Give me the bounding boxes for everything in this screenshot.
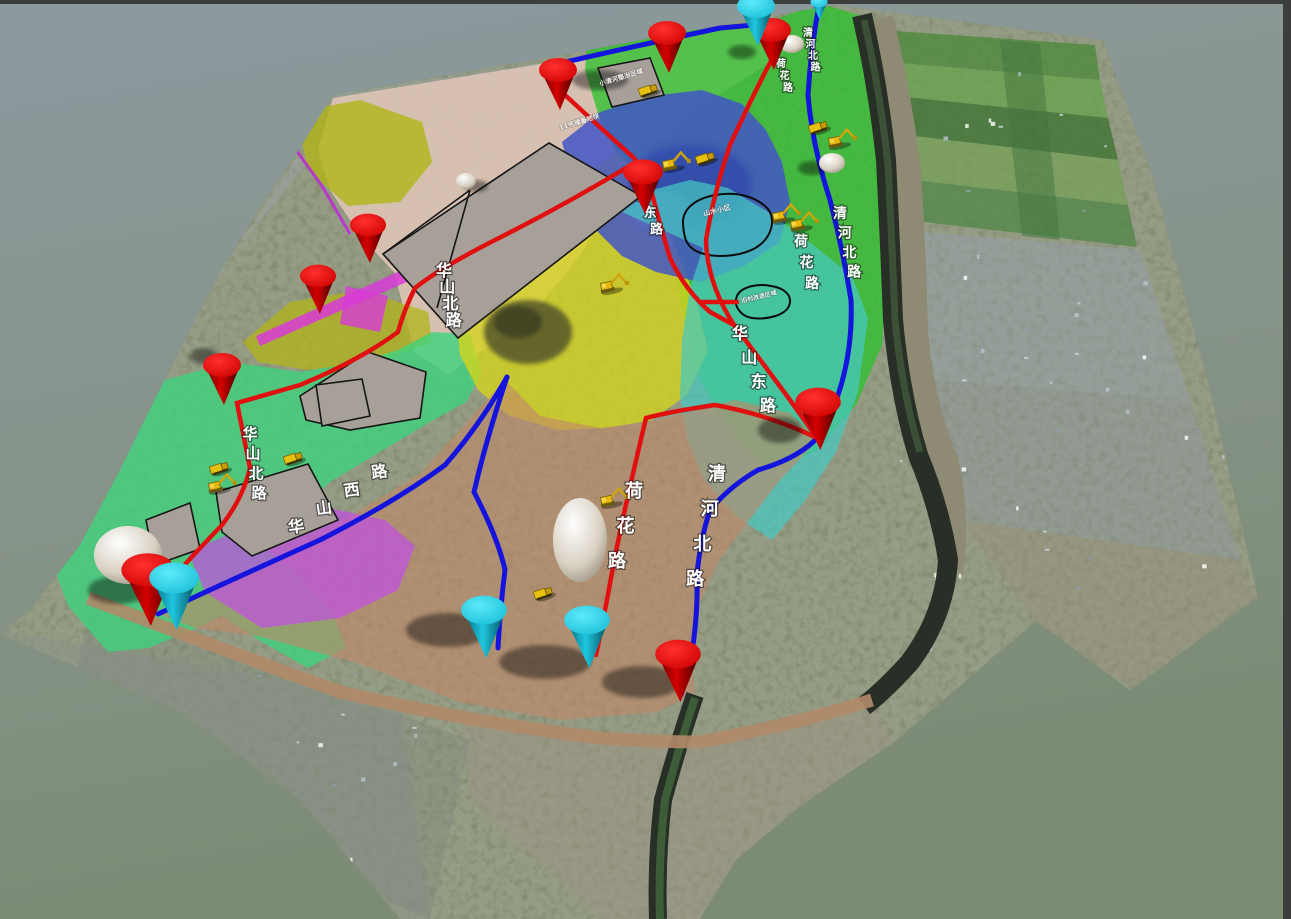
rooftop-speck bbox=[1056, 430, 1061, 432]
rooftop-speck bbox=[1045, 549, 1050, 551]
rooftop-speck bbox=[1074, 313, 1079, 317]
white-dome bbox=[819, 153, 845, 173]
rooftop-speck bbox=[964, 276, 968, 280]
rooftop-speck bbox=[393, 762, 397, 766]
rooftop-speck bbox=[412, 727, 417, 729]
svg-text:华: 华 bbox=[242, 425, 257, 443]
svg-text:河: 河 bbox=[701, 499, 719, 520]
svg-text:山: 山 bbox=[741, 348, 757, 367]
rooftop-speck bbox=[1143, 355, 1147, 359]
rooftop-speck bbox=[991, 122, 996, 126]
rooftop-speck bbox=[1043, 531, 1047, 533]
svg-text:清: 清 bbox=[708, 464, 726, 485]
svg-text:路: 路 bbox=[608, 550, 627, 572]
3d-viewport[interactable]: 华山北路华山东路清河北路荷花路清河北路荷花路华山东路清河北路荷花路华山北路华山西… bbox=[0, 0, 1291, 919]
white-dome bbox=[553, 498, 607, 582]
svg-text:路: 路 bbox=[650, 222, 664, 238]
rooftop-speck bbox=[1016, 506, 1019, 510]
rooftop-speck bbox=[1078, 302, 1081, 304]
svg-text:山: 山 bbox=[315, 498, 334, 519]
svg-text:河: 河 bbox=[838, 225, 852, 242]
svg-text:清: 清 bbox=[803, 26, 813, 39]
shadow-blob bbox=[758, 417, 802, 443]
shadow-blob bbox=[499, 645, 591, 679]
rooftop-speck bbox=[341, 714, 345, 716]
rooftop-speck bbox=[1143, 281, 1148, 285]
rooftop-speck bbox=[1222, 455, 1225, 459]
rooftop-speck bbox=[318, 743, 323, 747]
svg-text:北: 北 bbox=[842, 245, 856, 261]
svg-text:路: 路 bbox=[811, 61, 822, 74]
rooftop-speck bbox=[1060, 114, 1064, 116]
svg-text:华: 华 bbox=[287, 516, 306, 537]
svg-text:路: 路 bbox=[446, 311, 463, 330]
svg-text:山: 山 bbox=[245, 445, 260, 463]
svg-text:路: 路 bbox=[847, 264, 862, 281]
shadow-blob bbox=[728, 45, 756, 59]
svg-text:路: 路 bbox=[760, 396, 777, 415]
rooftop-speck bbox=[1185, 436, 1189, 440]
rooftop-speck bbox=[900, 460, 903, 462]
svg-text:清: 清 bbox=[833, 205, 847, 222]
rooftop-speck bbox=[977, 255, 980, 259]
svg-text:荷: 荷 bbox=[625, 480, 643, 502]
rooftop-speck bbox=[1024, 357, 1029, 359]
white-dome bbox=[456, 173, 476, 189]
svg-text:路: 路 bbox=[686, 568, 705, 590]
svg-text:东: 东 bbox=[751, 372, 767, 391]
rooftop-speck bbox=[1197, 431, 1200, 433]
svg-text:西: 西 bbox=[342, 479, 361, 500]
svg-text:北: 北 bbox=[693, 534, 711, 555]
svg-text:华: 华 bbox=[732, 324, 748, 343]
svg-text:路: 路 bbox=[251, 484, 267, 502]
svg-text:北: 北 bbox=[248, 464, 263, 482]
rooftop-speck bbox=[361, 777, 366, 781]
rooftop-speck bbox=[999, 126, 1004, 128]
rooftop-speck bbox=[1088, 558, 1091, 560]
rooftop-speck bbox=[1075, 353, 1079, 355]
rooftop-speck bbox=[981, 349, 985, 353]
rooftop-speck bbox=[962, 379, 967, 381]
svg-text:花: 花 bbox=[800, 254, 814, 271]
rooftop-speck bbox=[1202, 564, 1207, 568]
rooftop-speck bbox=[1104, 145, 1107, 147]
rooftop-speck bbox=[1050, 382, 1053, 384]
rooftop-speck bbox=[1082, 210, 1086, 212]
rooftop-speck bbox=[1024, 329, 1029, 331]
rooftop-speck bbox=[965, 124, 969, 128]
window-frame-top bbox=[0, 0, 1291, 4]
rooftop-speck bbox=[257, 675, 262, 677]
rooftop-speck bbox=[966, 190, 971, 192]
svg-text:花: 花 bbox=[780, 69, 790, 82]
svg-text:北: 北 bbox=[808, 49, 818, 62]
rooftop-speck bbox=[414, 734, 417, 738]
svg-text:路: 路 bbox=[805, 275, 820, 292]
rooftop-speck bbox=[1126, 410, 1130, 414]
svg-text:荷: 荷 bbox=[793, 233, 808, 250]
rooftop-speck bbox=[962, 467, 967, 471]
svg-text:花: 花 bbox=[617, 515, 635, 537]
rooftop-speck bbox=[1018, 72, 1021, 76]
rooftop-speck bbox=[1020, 271, 1024, 273]
rooftop-speck bbox=[297, 741, 300, 743]
rooftop-speck bbox=[354, 673, 358, 675]
svg-text:路: 路 bbox=[783, 81, 794, 94]
rooftop-speck bbox=[332, 784, 336, 786]
rooftop-speck bbox=[944, 136, 949, 140]
rooftop-speck bbox=[959, 574, 962, 578]
rooftop-speck bbox=[1076, 588, 1080, 590]
rooftop-speck bbox=[1106, 388, 1110, 392]
window-frame-right bbox=[1283, 0, 1291, 919]
svg-text:河: 河 bbox=[806, 39, 816, 51]
